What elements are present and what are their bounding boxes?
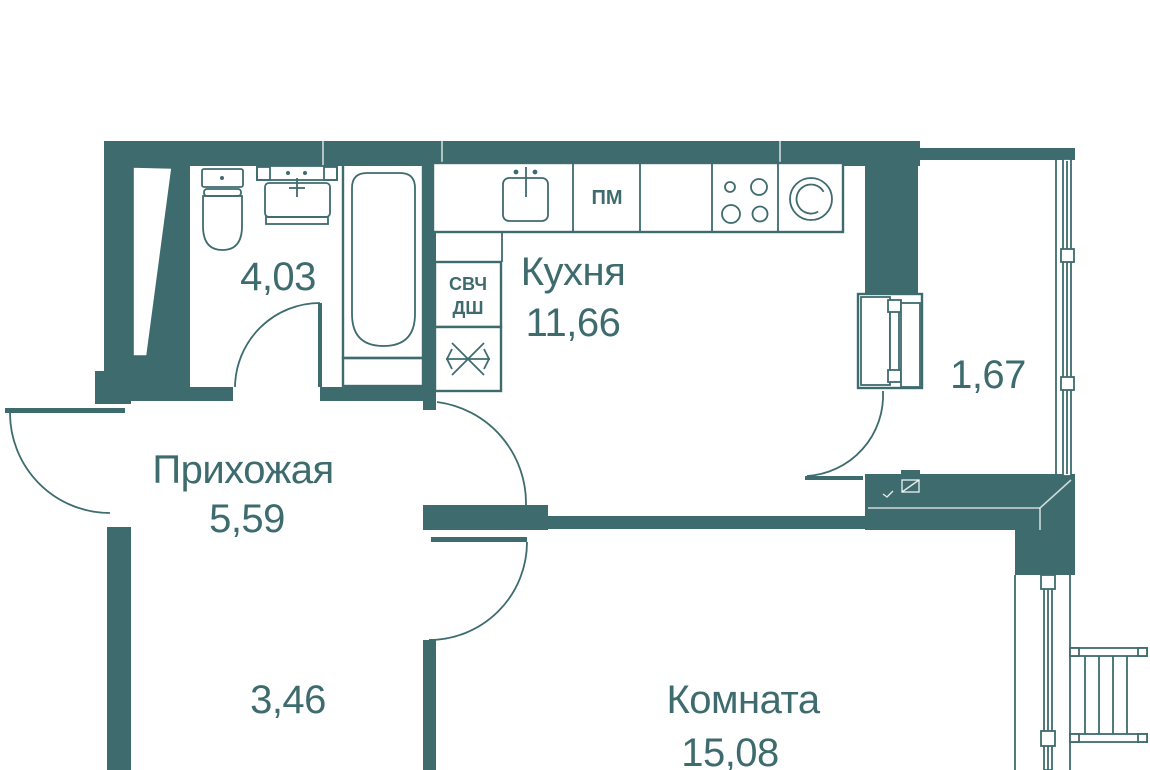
balcony-door-icon <box>805 294 922 480</box>
fridge-icon <box>435 327 501 391</box>
washbasin-icon <box>257 166 337 224</box>
room-label-hallway-area: 5,59 <box>209 499 285 539</box>
oven-label: ДШ <box>453 299 484 317</box>
room-label-niche-area: 3,46 <box>250 680 326 720</box>
room-label-bathroom-area: 4,03 <box>240 257 316 297</box>
balcony-window-icon <box>1056 159 1074 476</box>
room-window-icon <box>1015 575 1070 770</box>
room-label-hallway: Прихожая <box>152 450 333 490</box>
railing-icon <box>1070 648 1147 742</box>
microwave-label: СВЧ <box>449 275 487 293</box>
room-label-kitchen-area: 11,66 <box>526 303 621 343</box>
room-label-living-room-area: 15,08 <box>681 733 779 770</box>
room-door-icon <box>429 537 527 640</box>
dishwasher-label: ПМ <box>591 188 622 208</box>
room-label-balcony-area: 1,67 <box>950 355 1026 395</box>
entry-door-icon <box>5 408 125 513</box>
room-label-living-room: Комната <box>666 680 819 720</box>
floor-plan: 4,03 Кухня 11,66 Прихожая 5,59 3,46 Комн… <box>0 0 1150 770</box>
bathroom-door-icon <box>235 303 322 387</box>
kitchen-door-icon <box>437 402 526 505</box>
toilet-icon <box>202 169 243 250</box>
bathtub-icon <box>343 164 423 386</box>
room-label-kitchen: Кухня <box>521 252 626 292</box>
kitchen-counter <box>433 163 843 262</box>
